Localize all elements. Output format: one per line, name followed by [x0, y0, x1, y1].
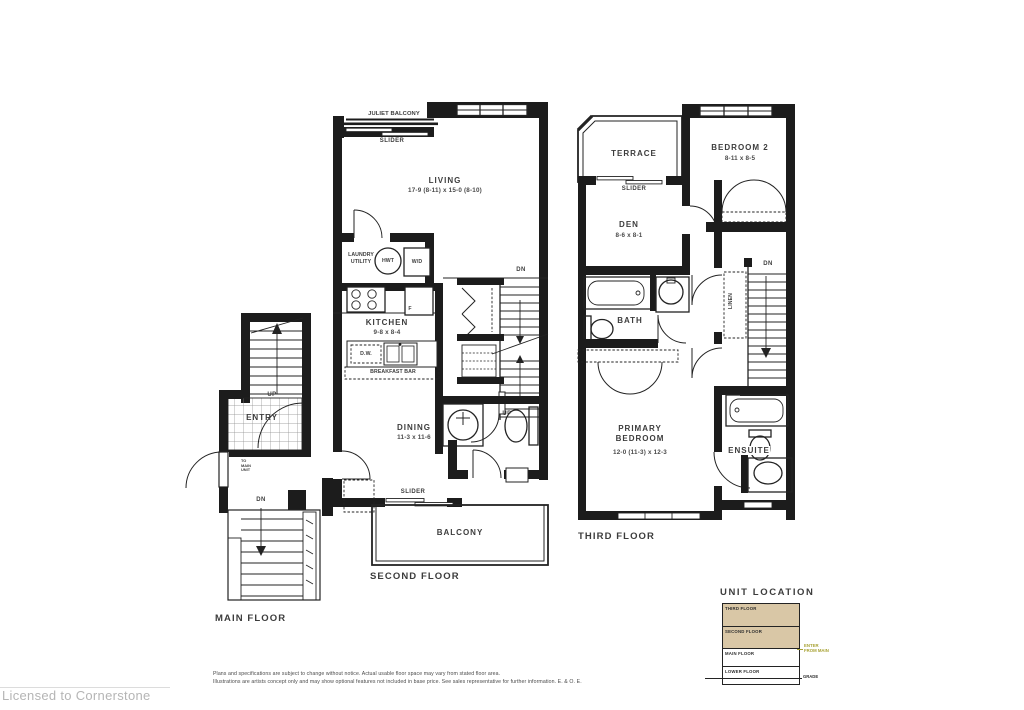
primary-label-line2: BEDROOM	[616, 434, 665, 444]
slider-label-bottom: SLIDER	[401, 489, 425, 495]
primary-bedroom-label: PRIMARY BEDROOM	[616, 424, 665, 444]
kitchen-label: KITCHEN	[366, 318, 409, 327]
juliet-balcony-rail	[346, 119, 434, 121]
stairs-down-main	[228, 508, 320, 600]
dining-label: DINING	[397, 423, 431, 432]
note-line2: FROM MAIN	[804, 648, 829, 653]
hall-linen-stairs	[692, 232, 795, 396]
bath-label: BATH	[617, 316, 643, 325]
third-floor-title: THIRD FLOOR	[578, 531, 655, 542]
stairs-dn-label-mf: DN	[256, 497, 265, 503]
second-floor-plan	[322, 102, 548, 565]
stairs-up-main	[250, 318, 303, 394]
bedroom2-closet	[706, 180, 795, 232]
unit-location-diagram: THIRD FLOOR SECOND FLOOR MAIN FLOOR LOWE…	[722, 603, 800, 685]
slider-label-tf: SLIDER	[622, 186, 646, 192]
main-floor-plan	[186, 313, 320, 600]
bedroom2-label: BEDROOM 2	[711, 143, 768, 152]
door-arc	[692, 275, 722, 305]
balcony-label: BALCONY	[437, 528, 484, 537]
den-dims: 8-6 x 8-1	[615, 232, 642, 239]
door-arc	[692, 348, 722, 378]
stairs-up-label-sf: UP	[502, 411, 511, 417]
washer-dryer-label: W/D	[412, 259, 422, 265]
entry-door-leaf	[219, 452, 228, 487]
closet-shelf	[578, 350, 678, 362]
bathroom	[578, 274, 689, 348]
floorplan-linework	[0, 0, 1024, 710]
unit-location-row-main: MAIN FLOOR	[723, 649, 799, 667]
balcony-step	[506, 468, 528, 482]
bifold-door-icon	[462, 288, 475, 340]
door-arc	[342, 451, 370, 479]
closet-door-arc	[630, 362, 662, 394]
breakfast-bar-label: BREAKFAST BAR	[370, 369, 416, 375]
license-text: Licensed to Cornerstone	[2, 688, 151, 703]
stairs-dn-label-tf: DN	[763, 261, 772, 267]
slider-door-icon	[597, 177, 633, 180]
hwt-label: HWT	[382, 258, 394, 264]
ensuite-label: ENSUITE	[728, 446, 770, 455]
entry-label: ENTRY	[246, 413, 278, 422]
main-floor-title: MAIN FLOOR	[215, 613, 286, 624]
floorplan-page: JULIET BALCONY SLIDER LIVING 17-9 (8-11)…	[0, 0, 1024, 710]
unit-location-row-third: THIRD FLOOR	[723, 604, 799, 627]
linen-label: LINEN	[728, 293, 734, 309]
to-main-unit-label: TO MAIN UNIT	[241, 459, 251, 473]
stairs-dn-label-sf: DN	[516, 267, 525, 273]
disclaimer-line1: Plans and specifications are subject to …	[213, 671, 500, 677]
primary-bedroom-dims: 12-0 (11-3) x 12-3	[613, 449, 667, 456]
grade-line	[705, 678, 802, 679]
enter-from-main-note: ENTER FROM MAIN	[804, 643, 829, 654]
door-arc	[186, 452, 222, 488]
third-floor-plan	[578, 104, 795, 520]
wall	[539, 102, 548, 480]
primary-label-line1: PRIMARY	[616, 424, 665, 434]
slider-door-icon	[386, 499, 424, 502]
utility-label: UTILITY	[348, 259, 374, 266]
door-arc	[471, 414, 499, 442]
fridge-label: F	[408, 306, 411, 312]
dishwasher-label: D.W.	[360, 351, 372, 357]
terrace-label: TERRACE	[611, 149, 657, 158]
closet-door-arc	[598, 362, 630, 394]
grade-label: GRADE	[803, 674, 818, 679]
kitchen-dims: 9-8 x 8-4	[373, 329, 400, 336]
laundry-label: LAUNDRY	[348, 252, 374, 259]
window-icon	[744, 502, 772, 508]
hall-closet	[457, 278, 504, 384]
annotation-tick	[797, 649, 803, 650]
vanity-sink-icon	[656, 277, 689, 312]
living-room-label: LIVING	[429, 176, 462, 185]
unit-location-row-lower: LOWER FLOOR	[723, 667, 799, 683]
to-main-unit-line3: UNIT	[241, 468, 251, 473]
juliet-balcony-label: JULIET BALCONY	[368, 111, 420, 117]
bedroom2-dims: 8-11 x 8-5	[725, 155, 755, 162]
second-floor-title: SECOND FLOOR	[370, 571, 460, 582]
door-arc	[658, 315, 686, 343]
unit-location-title: UNIT LOCATION	[720, 587, 815, 598]
laundry-utility-label: LAUNDRY UTILITY	[348, 252, 374, 266]
den-label: DEN	[619, 220, 639, 229]
unit-location-row-second: SECOND FLOOR	[723, 627, 799, 649]
stairs-up-label-mf: UP	[267, 392, 276, 398]
living-room-dims: 17-9 (8-11) x 15-0 (8-10)	[408, 187, 482, 194]
disclaimer-line2: Illustrations are artists concept only a…	[213, 679, 582, 685]
toilet-icon	[529, 407, 538, 445]
cabinet	[344, 480, 374, 512]
dining-dims: 11-3 x 11-6	[397, 434, 431, 441]
window-icon	[618, 513, 700, 519]
slider-door-icon	[346, 128, 392, 131]
slider-label: SLIDER	[380, 138, 404, 144]
